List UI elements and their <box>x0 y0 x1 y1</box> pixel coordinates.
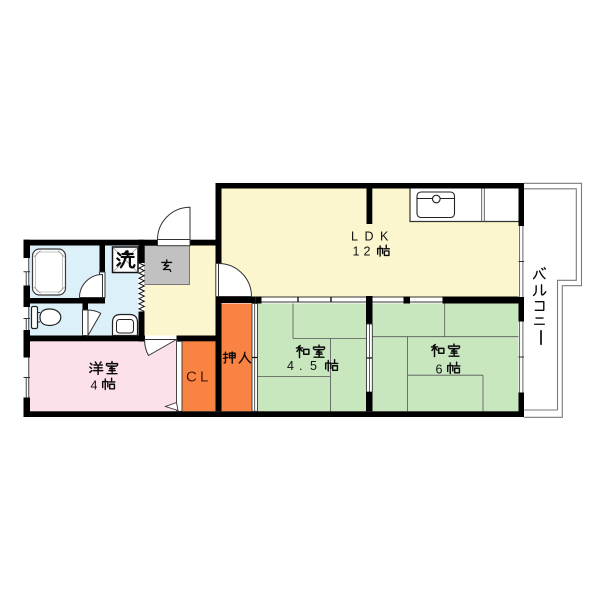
svg-text:5: 5 <box>310 359 317 373</box>
svg-text:4: 4 <box>91 379 98 393</box>
svg-text:1: 1 <box>353 245 360 259</box>
svg-text:2: 2 <box>364 245 371 259</box>
svg-text:CL: CL <box>186 369 212 386</box>
svg-text:6: 6 <box>436 363 443 377</box>
svg-text:LDK: LDK <box>351 230 395 244</box>
svg-text:.: . <box>299 359 302 373</box>
svg-text:4: 4 <box>287 359 294 373</box>
